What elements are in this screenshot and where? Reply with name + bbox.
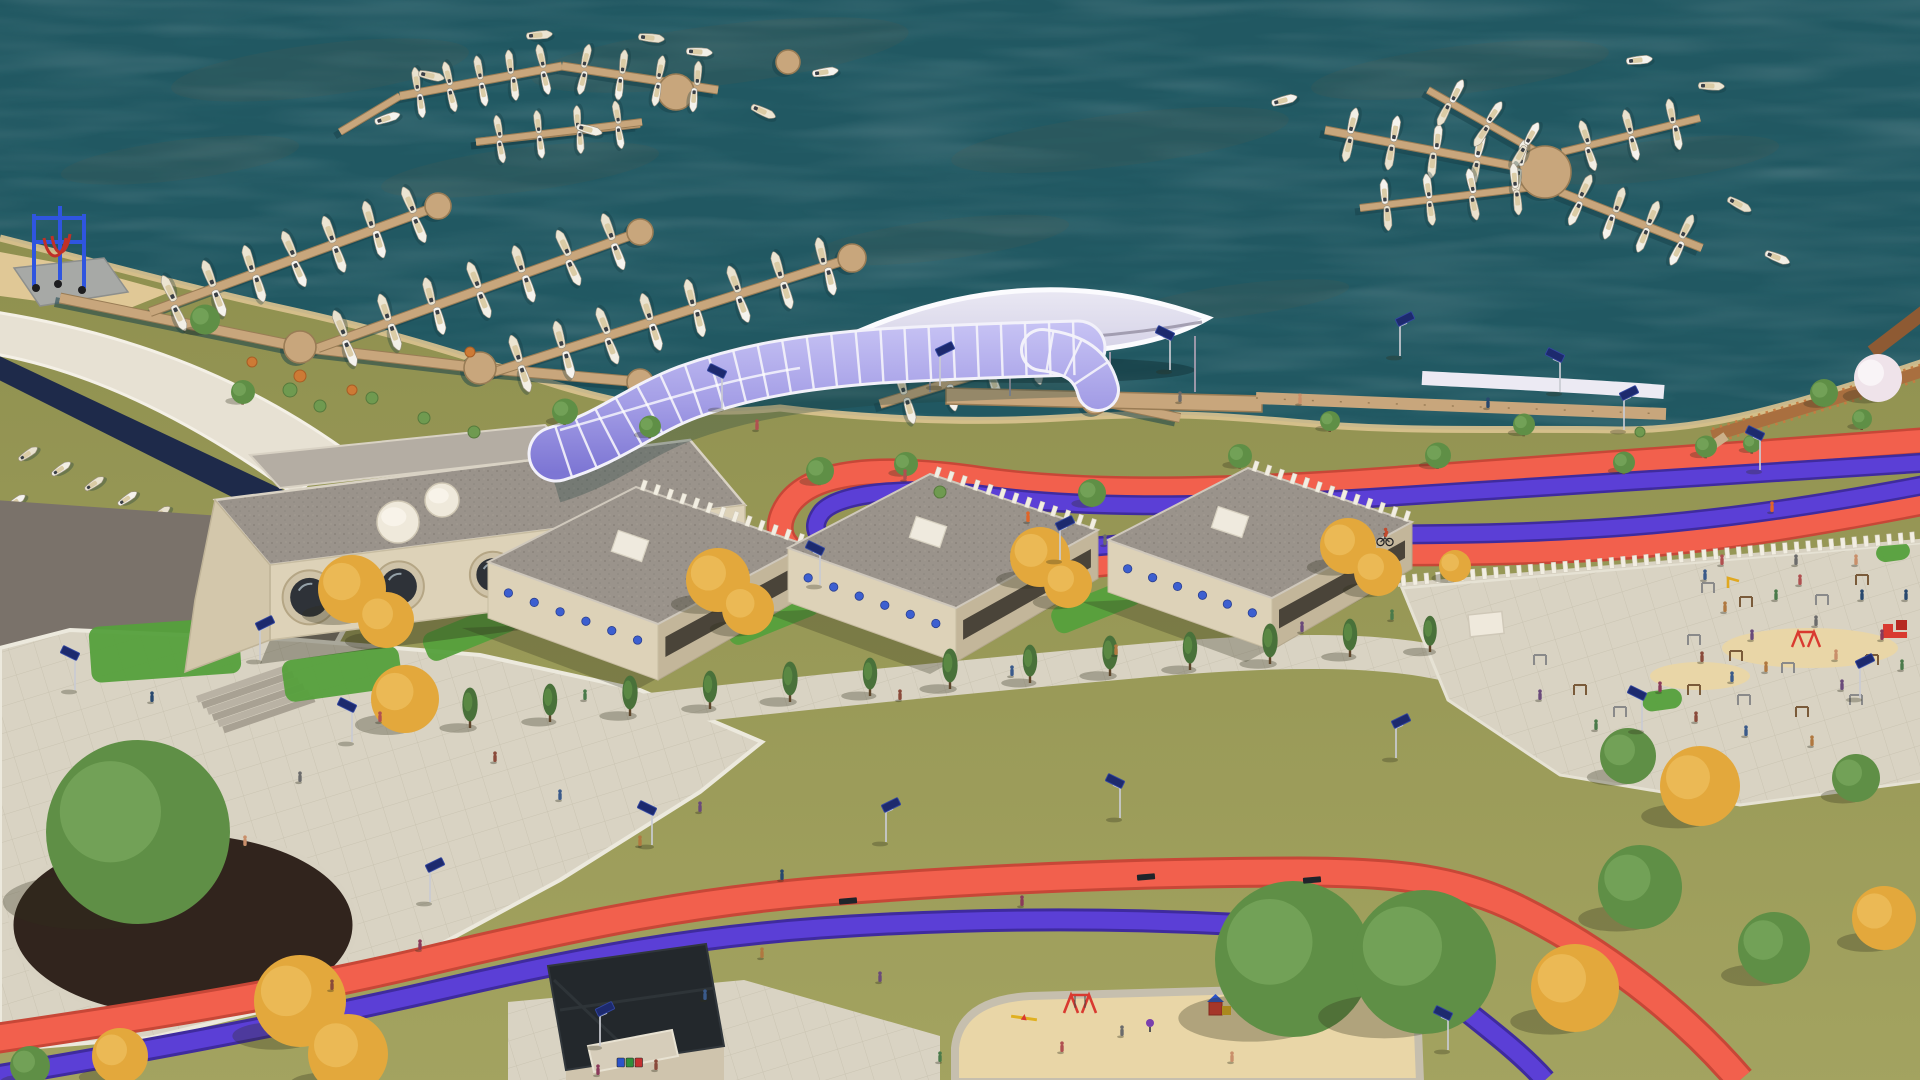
shrub [468, 426, 480, 438]
crenellation-tooth [1701, 549, 1706, 560]
crenellation-tooth [1540, 563, 1545, 574]
crenellation-tooth [1586, 559, 1591, 570]
crenellation-tooth [1563, 561, 1568, 572]
crenellation-tooth [1412, 574, 1417, 585]
crenellation-tooth [1678, 551, 1683, 562]
crenellation-tooth [1817, 540, 1822, 551]
crenellation-tooth [1667, 552, 1672, 563]
shrub-orange [465, 347, 475, 357]
crenellation-tooth [1736, 546, 1741, 557]
crenellation-tooth [1713, 548, 1718, 559]
shrub [1635, 427, 1645, 437]
crenellation-tooth [1551, 562, 1556, 573]
crenellation-tooth [1806, 541, 1811, 552]
crenellation-tooth [1875, 535, 1880, 546]
crenellation-tooth [1771, 544, 1776, 555]
shrub-orange [294, 370, 306, 382]
shrub [934, 486, 946, 498]
crenellation-tooth [1794, 542, 1799, 553]
crenellation-tooth [1609, 557, 1614, 568]
crenellation-tooth [1898, 533, 1903, 544]
crenellation-tooth [1424, 573, 1429, 584]
crenellation-tooth [1748, 546, 1753, 557]
crenellation-tooth [1597, 558, 1602, 569]
marina-render-stage [0, 0, 1920, 1080]
crenellation-tooth [1782, 543, 1787, 554]
crenellation-tooth [1632, 555, 1637, 566]
park-kiosk [548, 944, 724, 1080]
shrub [366, 392, 378, 404]
shrub [314, 400, 326, 412]
shrub [283, 383, 297, 397]
plaza-kiosk-box [1468, 611, 1504, 636]
dock-platform [838, 244, 866, 272]
crenellation-tooth [1655, 553, 1660, 564]
dock-platform [627, 219, 653, 245]
recycling-bin [635, 1058, 643, 1067]
tube-rib [1025, 322, 1027, 376]
recycling-bins [617, 1058, 643, 1067]
dock-platform [425, 193, 451, 219]
shrub-orange [347, 385, 357, 395]
crenellation-tooth [1690, 550, 1695, 561]
recycling-bin [617, 1058, 625, 1067]
shrub-orange [247, 357, 257, 367]
dock-platform [776, 50, 800, 74]
crenellation-tooth [1528, 564, 1533, 575]
crenellation-tooth [1910, 532, 1915, 543]
shrub [418, 412, 430, 424]
crenellation-tooth [1840, 538, 1845, 549]
crenellation-tooth [1516, 565, 1521, 576]
crenellation-tooth [1493, 567, 1498, 578]
crenellation-tooth [1852, 537, 1857, 548]
crenellation-tooth [1470, 569, 1475, 580]
crenellation-tooth [1574, 560, 1579, 571]
crenellation-tooth [1482, 568, 1487, 579]
scene-svg [0, 0, 1920, 1080]
crenellation-tooth [1759, 545, 1764, 556]
crenellation-tooth [1620, 556, 1625, 567]
tube-rib [1073, 321, 1074, 375]
crenellation-tooth [1505, 566, 1510, 577]
recycling-bin [626, 1058, 634, 1067]
crenellation-tooth [1829, 539, 1834, 550]
crenellation-tooth [1725, 547, 1730, 558]
crenellation-tooth [1863, 536, 1868, 547]
crenellation-tooth [1886, 534, 1891, 545]
dock-platform [284, 331, 316, 363]
crenellation-tooth [1644, 554, 1649, 565]
